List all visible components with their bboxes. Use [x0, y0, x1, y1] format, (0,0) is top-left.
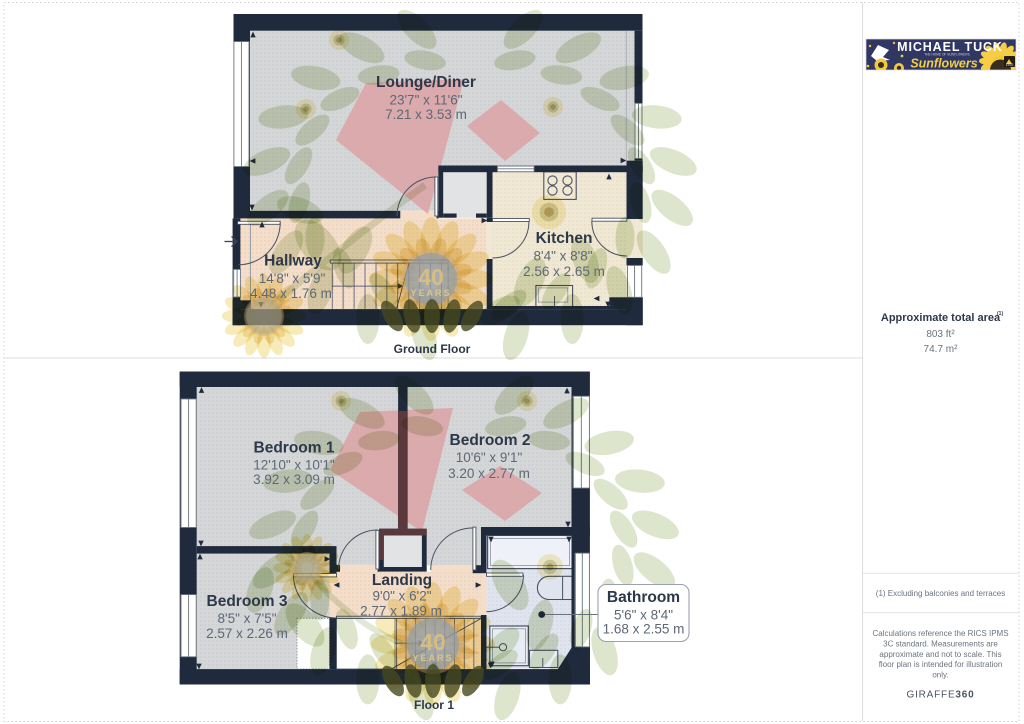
svg-text:Calculations reference the RIC: Calculations reference the RICS IPMS [872, 629, 1008, 638]
svg-text:3C standard. Measurements are: 3C standard. Measurements are [883, 639, 998, 648]
svg-text:Ground Floor: Ground Floor [394, 342, 471, 356]
svg-text:2.57 x 2.26 m: 2.57 x 2.26 m [206, 626, 288, 641]
svg-text:Lounge/Diner: Lounge/Diner [376, 74, 476, 91]
svg-text:Kitchen: Kitchen [536, 230, 593, 247]
svg-text:4.48 x 1.76 m: 4.48 x 1.76 m [250, 286, 332, 301]
svg-text:23'7" x 11'6": 23'7" x 11'6" [389, 93, 462, 108]
svg-text:10'6" x 9'1": 10'6" x 9'1" [456, 450, 523, 465]
svg-text:1970: 1970 [1006, 63, 1014, 67]
svg-text:GIRAFFE360: GIRAFFE360 [906, 690, 974, 701]
svg-text:14'8" x 5'9": 14'8" x 5'9" [259, 271, 326, 286]
svg-text:40: 40 [418, 264, 444, 290]
svg-text:Hallway: Hallway [264, 253, 322, 270]
svg-text:YEARS: YEARS [410, 288, 451, 298]
svg-text:3.92 x 3.09 m: 3.92 x 3.09 m [253, 472, 335, 487]
svg-text:2.77 x 1.89 m: 2.77 x 1.89 m [360, 604, 442, 619]
svg-text:8'4" x 8'8": 8'4" x 8'8" [533, 249, 592, 264]
svg-text:Bedroom 3: Bedroom 3 [207, 593, 288, 610]
svg-text:40: 40 [420, 629, 446, 655]
svg-text:Bedroom 1: Bedroom 1 [254, 440, 335, 457]
svg-text:Landing: Landing [372, 572, 432, 589]
svg-text:9'0" x 6'2": 9'0" x 6'2" [372, 589, 431, 604]
svg-text:12'10" x 10'1": 12'10" x 10'1" [253, 458, 335, 473]
svg-text:Bathroom: Bathroom [607, 589, 680, 606]
svg-text:approximate and not to scale.: approximate and not to scale. This [879, 650, 1001, 659]
svg-text:74.7 m²: 74.7 m² [924, 344, 959, 355]
svg-text:Floor 1: Floor 1 [414, 698, 454, 712]
svg-text:1.68 x 2.55 m: 1.68 x 2.55 m [603, 622, 685, 637]
svg-text:803 ft²: 803 ft² [926, 329, 955, 340]
svg-text:YEARS: YEARS [412, 653, 453, 663]
svg-text:Bedroom 2: Bedroom 2 [450, 432, 531, 449]
svg-text:5'6" x 8'4": 5'6" x 8'4" [614, 608, 673, 623]
svg-text:(1) Excluding balconies and te: (1) Excluding balconies and terraces [876, 589, 1005, 598]
svg-text:2.56 x 2.65 m: 2.56 x 2.65 m [523, 264, 605, 279]
svg-text:3.20 x 2.77 m: 3.20 x 2.77 m [448, 466, 530, 481]
svg-text:Sunflowers: Sunflowers [910, 57, 977, 71]
svg-text:(1): (1) [997, 311, 1003, 317]
svg-text:8'5" x 7'5": 8'5" x 7'5" [217, 611, 276, 626]
svg-text:Approximate total area: Approximate total area [881, 312, 1001, 324]
svg-text:floor plan is intended for ill: floor plan is intended for illustration [879, 660, 1003, 669]
svg-text:7.21 x 3.53 m: 7.21 x 3.53 m [385, 107, 467, 122]
svg-text:only.: only. [932, 671, 948, 680]
